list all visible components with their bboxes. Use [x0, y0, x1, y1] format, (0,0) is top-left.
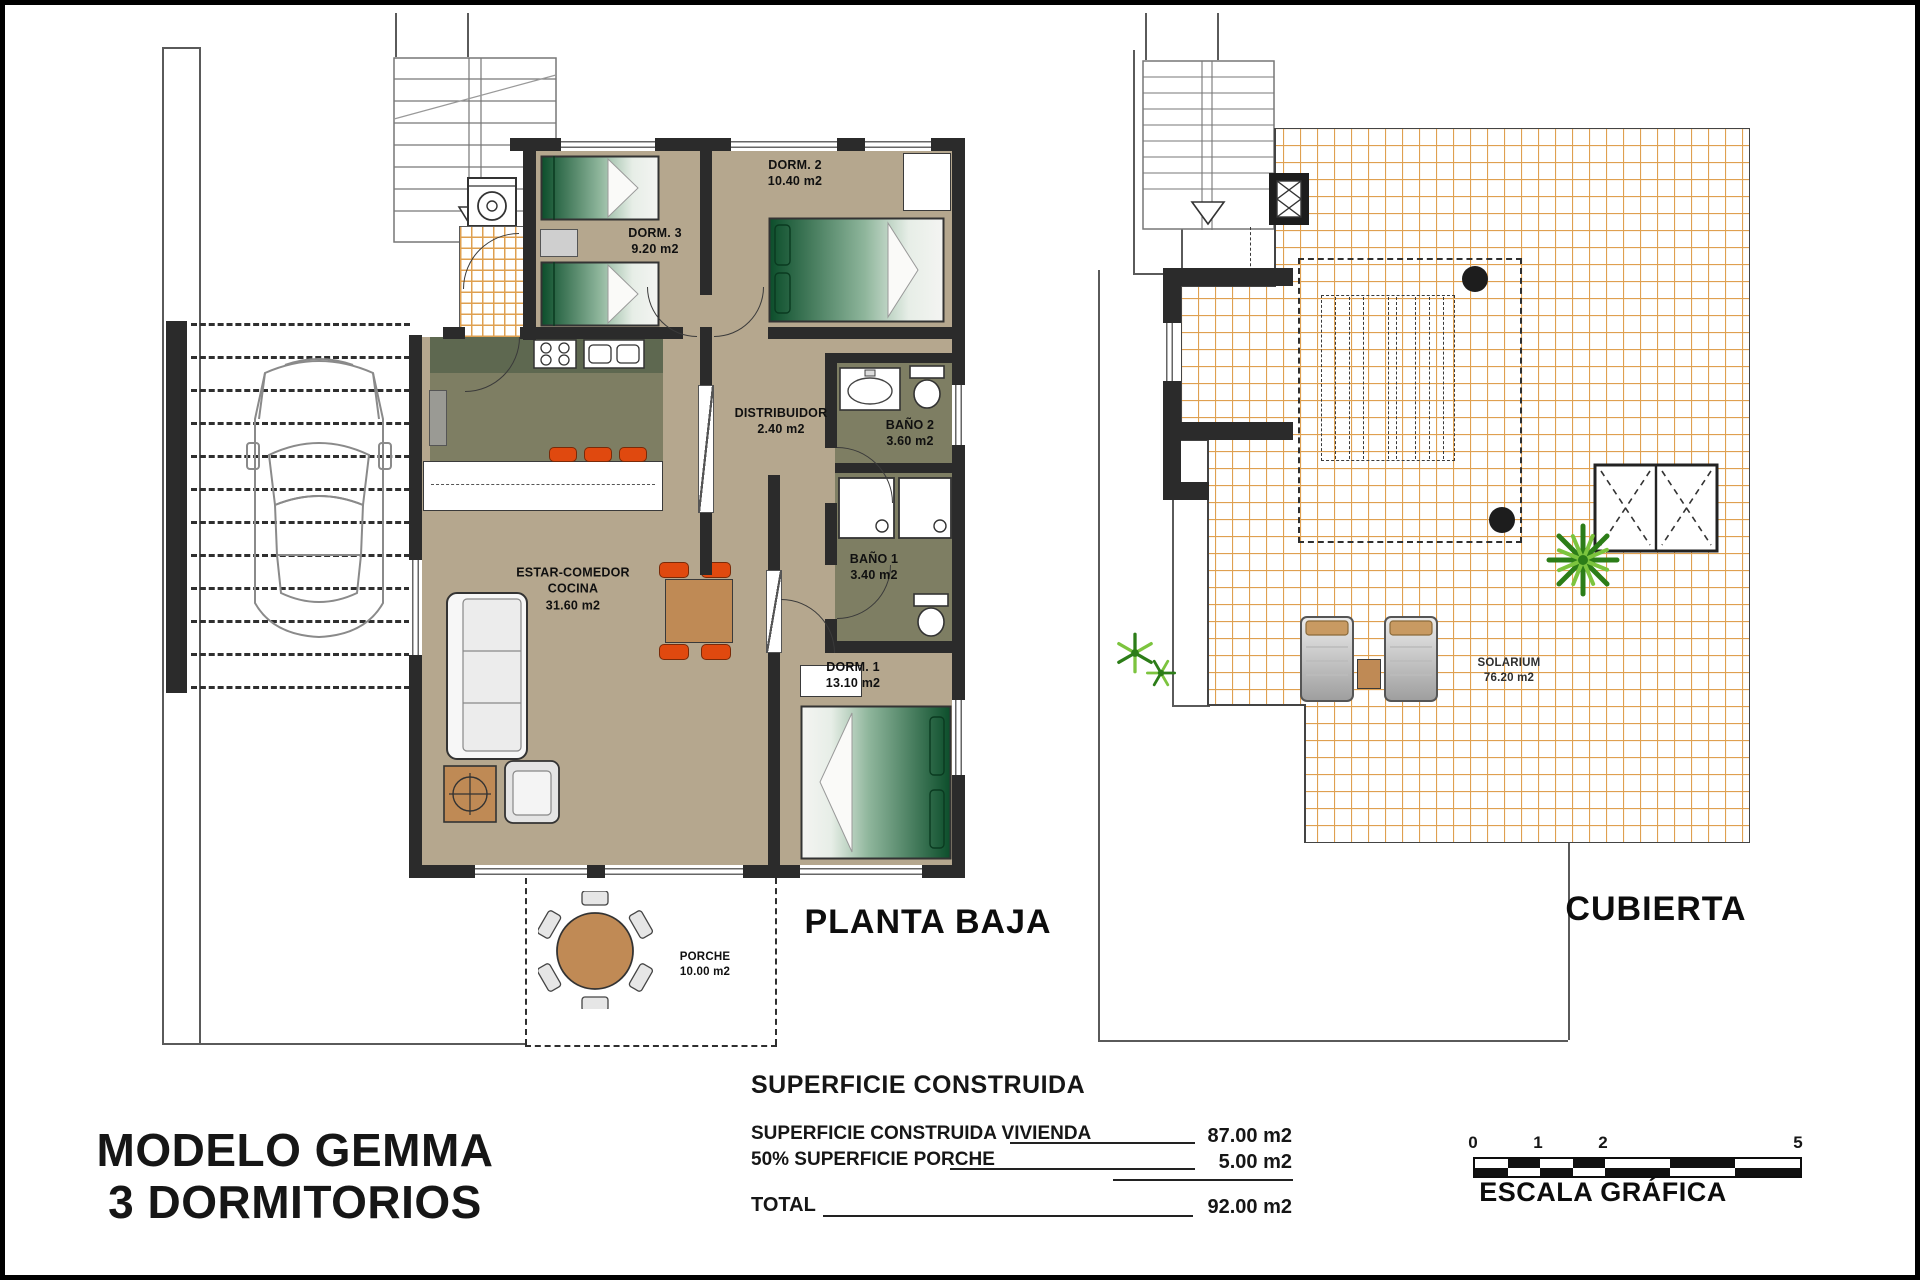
stair-tread-line [1429, 297, 1430, 459]
room-label-dorm3: DORM. 3 9.20 m2 [628, 225, 682, 258]
plot-boundary-line [162, 1043, 525, 1045]
room-name: ESTAR-COMEDOR [516, 565, 629, 581]
plot-boundary-line [162, 47, 164, 1043]
stool-symbol [619, 447, 647, 462]
wall [700, 138, 712, 295]
floor-plan-sheet: DORM. 3 9.20 m2 DORM. 2 10.40 m2 DISTRIB… [0, 0, 1920, 1280]
sun-lounger-symbol [1383, 615, 1439, 703]
table-row-label: TOTAL [751, 1194, 816, 1217]
table-row-value: 87.00 m2 [1152, 1125, 1292, 1148]
wall [520, 327, 536, 339]
plot-boundary-line [1145, 13, 1147, 60]
porch-boundary [775, 878, 777, 1045]
stair-rail-line [1388, 297, 1389, 459]
stair-tread-line [1443, 297, 1444, 459]
stool-symbol [584, 447, 612, 462]
wardrobe [903, 153, 951, 211]
leader-line [823, 1215, 1193, 1217]
wall [700, 327, 712, 385]
model-title-line1: MODELO GEMMA [80, 1125, 510, 1177]
porch-boundary [525, 1045, 777, 1047]
porch-table-symbol [538, 891, 653, 1009]
table-row-value: 92.00 m2 [1152, 1196, 1292, 1219]
scale-tick: 1 [1523, 1133, 1553, 1153]
wall [523, 327, 683, 339]
stair-tread-line [1349, 297, 1350, 459]
single-bed-symbol [540, 155, 660, 221]
scale-tick: 2 [1588, 1133, 1618, 1153]
double-bed-symbol [800, 705, 952, 860]
roof-drain-dot [1489, 507, 1515, 533]
chair-symbol [659, 562, 689, 578]
table-title: SUPERFICIE CONSTRUIDA [751, 1071, 1085, 1100]
room-label-estar: ESTAR-COMEDOR COCINA 31.60 m2 [516, 565, 629, 614]
nightstand [540, 229, 578, 257]
wall [768, 475, 780, 570]
stair-tread-line [1415, 297, 1416, 459]
roof-hatch-symbol [1269, 173, 1309, 225]
stair-tread-line [1335, 297, 1336, 459]
room-area: 2.40 m2 [735, 421, 828, 437]
plot-boundary-line [395, 13, 397, 57]
side-table-symbol [443, 765, 497, 823]
chair-symbol [701, 644, 731, 660]
scale-bar [1473, 1157, 1802, 1178]
window [865, 138, 931, 151]
scale-caption: ESCALA GRÁFICA [1479, 1177, 1727, 1208]
wall [768, 327, 952, 339]
window [409, 560, 422, 655]
window [731, 138, 837, 151]
room-label-bano1: BAÑO 1 3.40 m2 [850, 551, 898, 584]
room-label-distribuidor: DISTRIBUIDOR 2.40 m2 [735, 405, 828, 438]
room-area: 10.40 m2 [768, 173, 822, 189]
stair-rail-line [1396, 297, 1397, 459]
room-area: 76.20 m2 [1478, 671, 1541, 686]
plant-symbol [1145, 657, 1177, 689]
room-name: DORM. 2 [768, 157, 822, 173]
armchair-symbol [503, 759, 561, 825]
stool-symbol [549, 447, 577, 462]
wall [700, 513, 712, 575]
scale-tick: 0 [1458, 1133, 1488, 1153]
room-name: DORM. 1 [826, 659, 880, 675]
room-name: PORCHE [680, 950, 730, 965]
room-label-bano2: BAÑO 2 3.60 m2 [886, 417, 934, 450]
wall [825, 353, 952, 363]
window [475, 865, 587, 878]
chair-symbol [659, 644, 689, 660]
room-area: 13.10 m2 [826, 675, 880, 691]
stair-tread-line [1363, 297, 1364, 459]
room-name: DORM. 3 [628, 225, 682, 241]
single-bed-symbol [540, 261, 660, 327]
room-area: 3.40 m2 [850, 567, 898, 583]
garden-wall [166, 321, 187, 693]
model-title-line2: 3 DORMITORIOS [80, 1177, 510, 1229]
room-name: DISTRIBUIDOR [735, 405, 828, 421]
cooktop-symbol [533, 339, 577, 369]
shower-tray-symbol [898, 477, 952, 539]
wall [825, 503, 837, 565]
room-area: 31.60 m2 [516, 597, 629, 613]
wall [768, 653, 780, 878]
room-label-porche: PORCHE 10.00 m2 [680, 950, 730, 980]
room-name: BAÑO 1 [850, 551, 898, 567]
plot-boundary-line [1098, 270, 1100, 1040]
room-name: SOLARIUM [1478, 656, 1541, 671]
driveway-line [191, 686, 410, 689]
plot-boundary-line [1133, 50, 1135, 275]
room-label-dorm2: DORM. 2 10.40 m2 [768, 157, 822, 190]
scale-tick: 5 [1783, 1133, 1813, 1153]
kitchen-worktop [429, 390, 447, 446]
room-area: 3.60 m2 [886, 433, 934, 449]
window [1163, 323, 1181, 381]
roof-plan-caption: CUBIERTA [1565, 890, 1746, 929]
plot-boundary-line [162, 47, 200, 49]
plot-boundary-line [1217, 13, 1219, 60]
wall [825, 641, 952, 653]
parapet-wall [1163, 268, 1293, 286]
toilet-symbol [907, 365, 947, 411]
plot-boundary-line [467, 13, 469, 57]
window [605, 865, 743, 878]
sum-line [1113, 1179, 1293, 1181]
window [561, 138, 655, 151]
room-name: COCINA [516, 581, 629, 597]
table-row-value: 5.00 m2 [1152, 1151, 1292, 1174]
wall [523, 138, 536, 340]
washing-machine-symbol [467, 177, 517, 227]
porch-boundary [525, 878, 527, 1045]
sofa-symbol [445, 591, 529, 761]
sliding-door [766, 570, 782, 653]
dining-table-symbol [665, 579, 733, 643]
kitchen-sink-symbol [583, 339, 645, 369]
ground-plan-caption: PLANTA BAJA [804, 903, 1051, 942]
sun-lounger-symbol [1299, 615, 1355, 703]
model-title: MODELO GEMMA 3 DORMITORIOS [80, 1125, 510, 1228]
room-name: BAÑO 2 [886, 417, 934, 433]
roof-drain-dot [1462, 266, 1488, 292]
window [800, 865, 922, 878]
room-label-dorm1: DORM. 1 13.10 m2 [826, 659, 880, 692]
plot-boundary-line [199, 47, 201, 1043]
kitchen-island [423, 461, 663, 511]
plot-boundary-line [1133, 273, 1165, 275]
room-area: 9.20 m2 [628, 241, 682, 257]
driveway-line [191, 323, 410, 326]
parapet-wall [1163, 440, 1181, 482]
parapet-wall [1163, 422, 1293, 440]
toilet-symbol [911, 593, 951, 639]
room-label-solarium: SOLARIUM 76.20 m2 [1478, 656, 1541, 686]
lounge-table-symbol [1357, 659, 1381, 689]
window [952, 700, 965, 775]
bathroom-sink-symbol [839, 367, 901, 411]
sliding-door [698, 385, 714, 513]
plot-boundary-line [1098, 1040, 1568, 1042]
room-area: 10.00 m2 [680, 965, 730, 980]
wall [443, 327, 465, 339]
plant-symbol [1543, 520, 1623, 600]
window [952, 385, 965, 445]
plot-boundary-line [1568, 843, 1570, 1040]
island-centerline [431, 484, 655, 485]
parapet-wall [1163, 482, 1209, 500]
double-bed-symbol [768, 217, 945, 323]
car-symbol [245, 335, 393, 660]
